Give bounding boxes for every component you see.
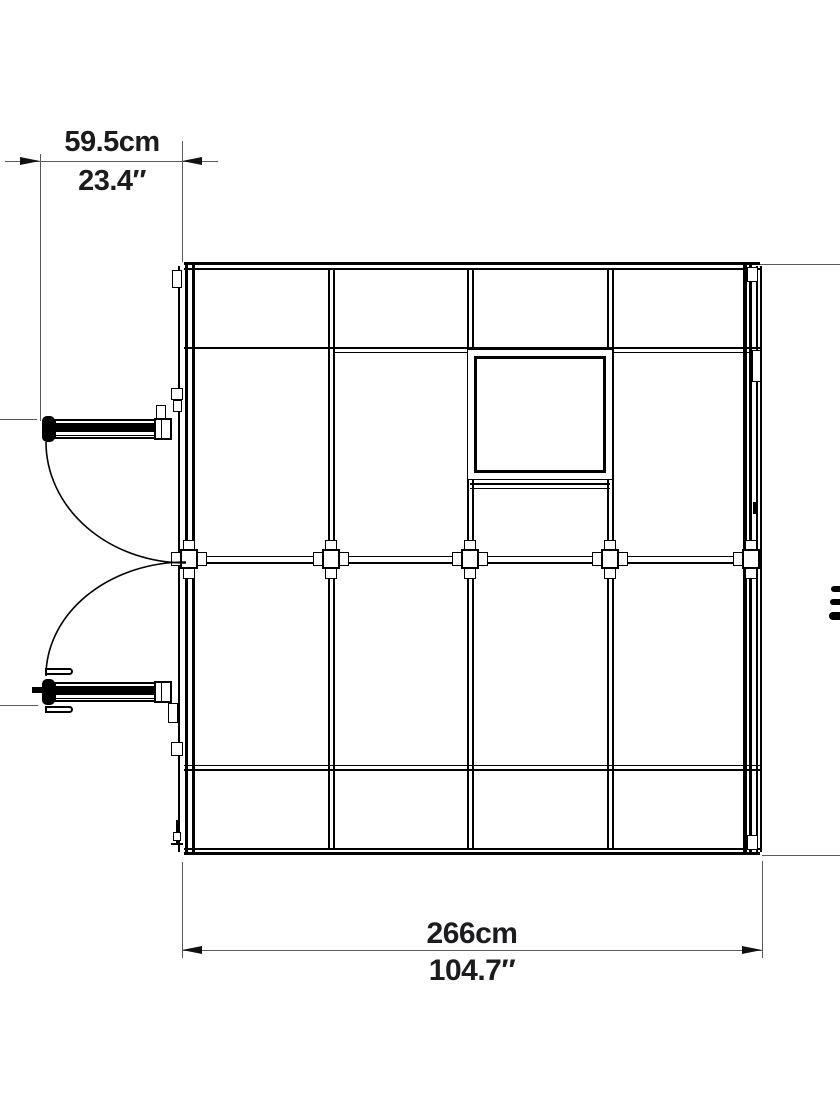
door-wall-bracket-line [161, 683, 162, 701]
door-hinge-fitting [168, 703, 178, 723]
door-latch-pin [32, 687, 44, 693]
door-panel-line [56, 698, 154, 699]
door-handle-bar [45, 706, 73, 713]
door-wall-bracket [154, 418, 172, 440]
door-panel-line [56, 435, 154, 436]
plan-drawing-canvas: 59.5cm 23.4″ 266cm 104.7″ [0, 0, 840, 1120]
door-panel-core [56, 423, 154, 432]
door-handle-bar [45, 668, 73, 675]
door-swing-arc-bottom [46, 562, 186, 676]
door-swing-arc-top [46, 442, 186, 563]
door-wall-bracket-line [161, 420, 162, 438]
door-wall-bracket [154, 681, 172, 703]
door-swing-arcs [0, 0, 840, 1120]
door-panel-core [56, 686, 154, 695]
door-end-cap [42, 416, 55, 442]
door-hinge-knuckle [156, 405, 166, 419]
